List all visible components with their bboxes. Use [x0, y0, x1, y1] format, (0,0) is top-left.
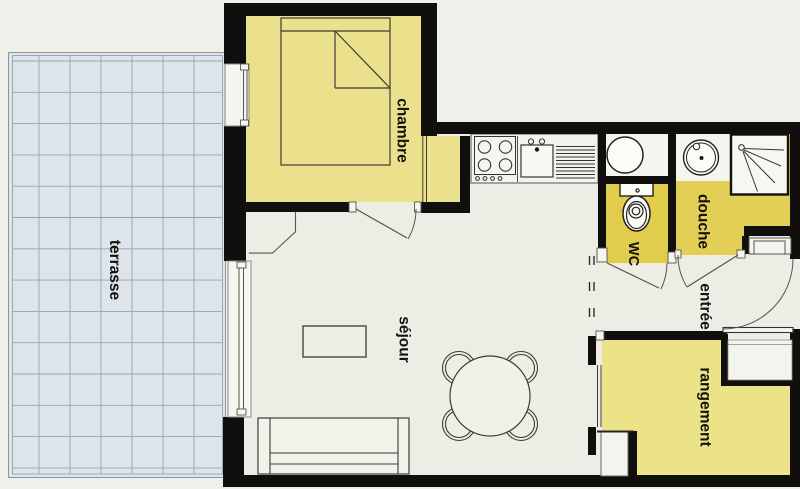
svg-text:séjour: séjour	[396, 316, 413, 363]
svg-text:entrée: entrée	[697, 283, 714, 330]
svg-text:chambre: chambre	[394, 98, 411, 163]
svg-text:douche: douche	[695, 194, 712, 249]
svg-text:rangement: rangement	[697, 367, 714, 446]
svg-text:terrasse: terrasse	[106, 240, 123, 301]
svg-text:WC: WC	[625, 242, 641, 267]
